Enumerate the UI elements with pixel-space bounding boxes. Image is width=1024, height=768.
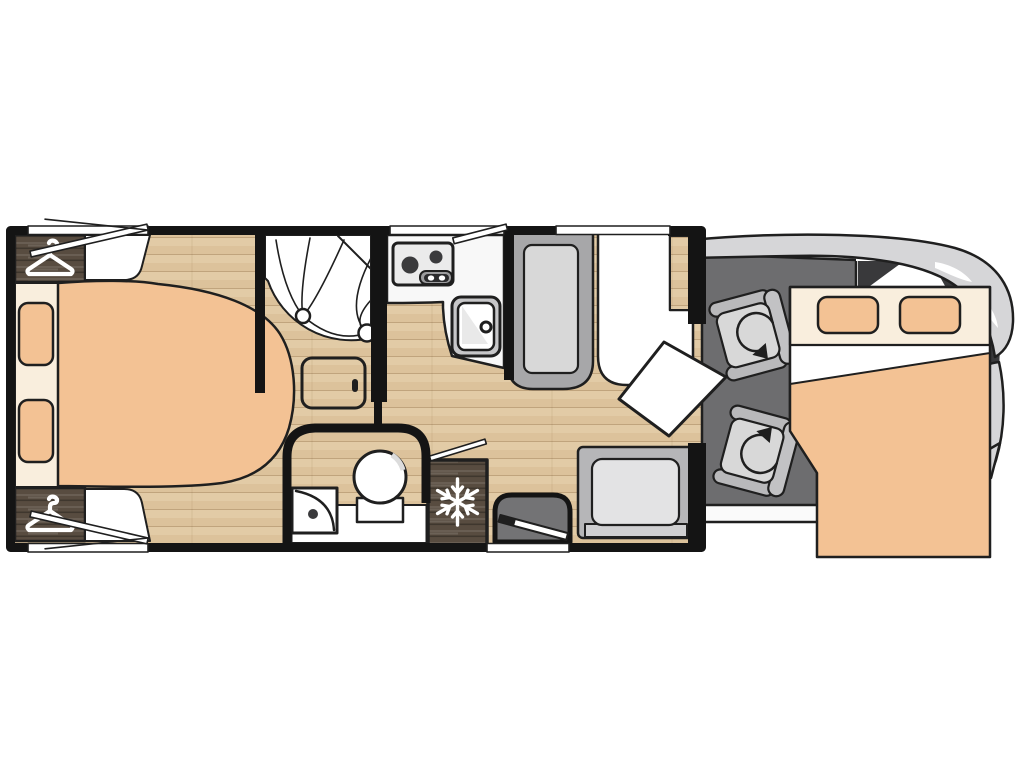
wall-kitchen-dinette <box>504 226 514 380</box>
motorhome-floorplan <box>0 0 1024 768</box>
pillow <box>818 297 878 333</box>
cab-side-sill <box>700 505 818 522</box>
hob-burner-small <box>430 251 443 264</box>
rear-bench-cushion <box>592 459 679 525</box>
shower-curtain-roller <box>296 309 310 323</box>
floorplan-canvas <box>0 0 1024 768</box>
window-dinette <box>556 226 670 235</box>
pillow <box>900 297 960 333</box>
hob-burner-large <box>402 257 419 274</box>
pillow <box>19 400 53 462</box>
windshield-glass-left <box>858 261 904 286</box>
side-shelf-handle <box>352 379 358 392</box>
wall-shower-kitchen <box>371 226 387 402</box>
wall-cab-bottom <box>688 443 702 552</box>
drop-down-bed <box>790 287 990 557</box>
sink-faucet <box>481 322 491 332</box>
entry-door-opening <box>487 544 569 553</box>
pillow <box>19 303 53 365</box>
hob-knob-strip <box>424 274 449 282</box>
basin-drain <box>308 509 318 519</box>
hob-knob <box>439 275 445 280</box>
hob-knob <box>428 275 434 280</box>
wall-cab-top <box>688 226 702 324</box>
wall-shower-left <box>255 226 265 393</box>
side-bench-cushion <box>524 245 578 373</box>
